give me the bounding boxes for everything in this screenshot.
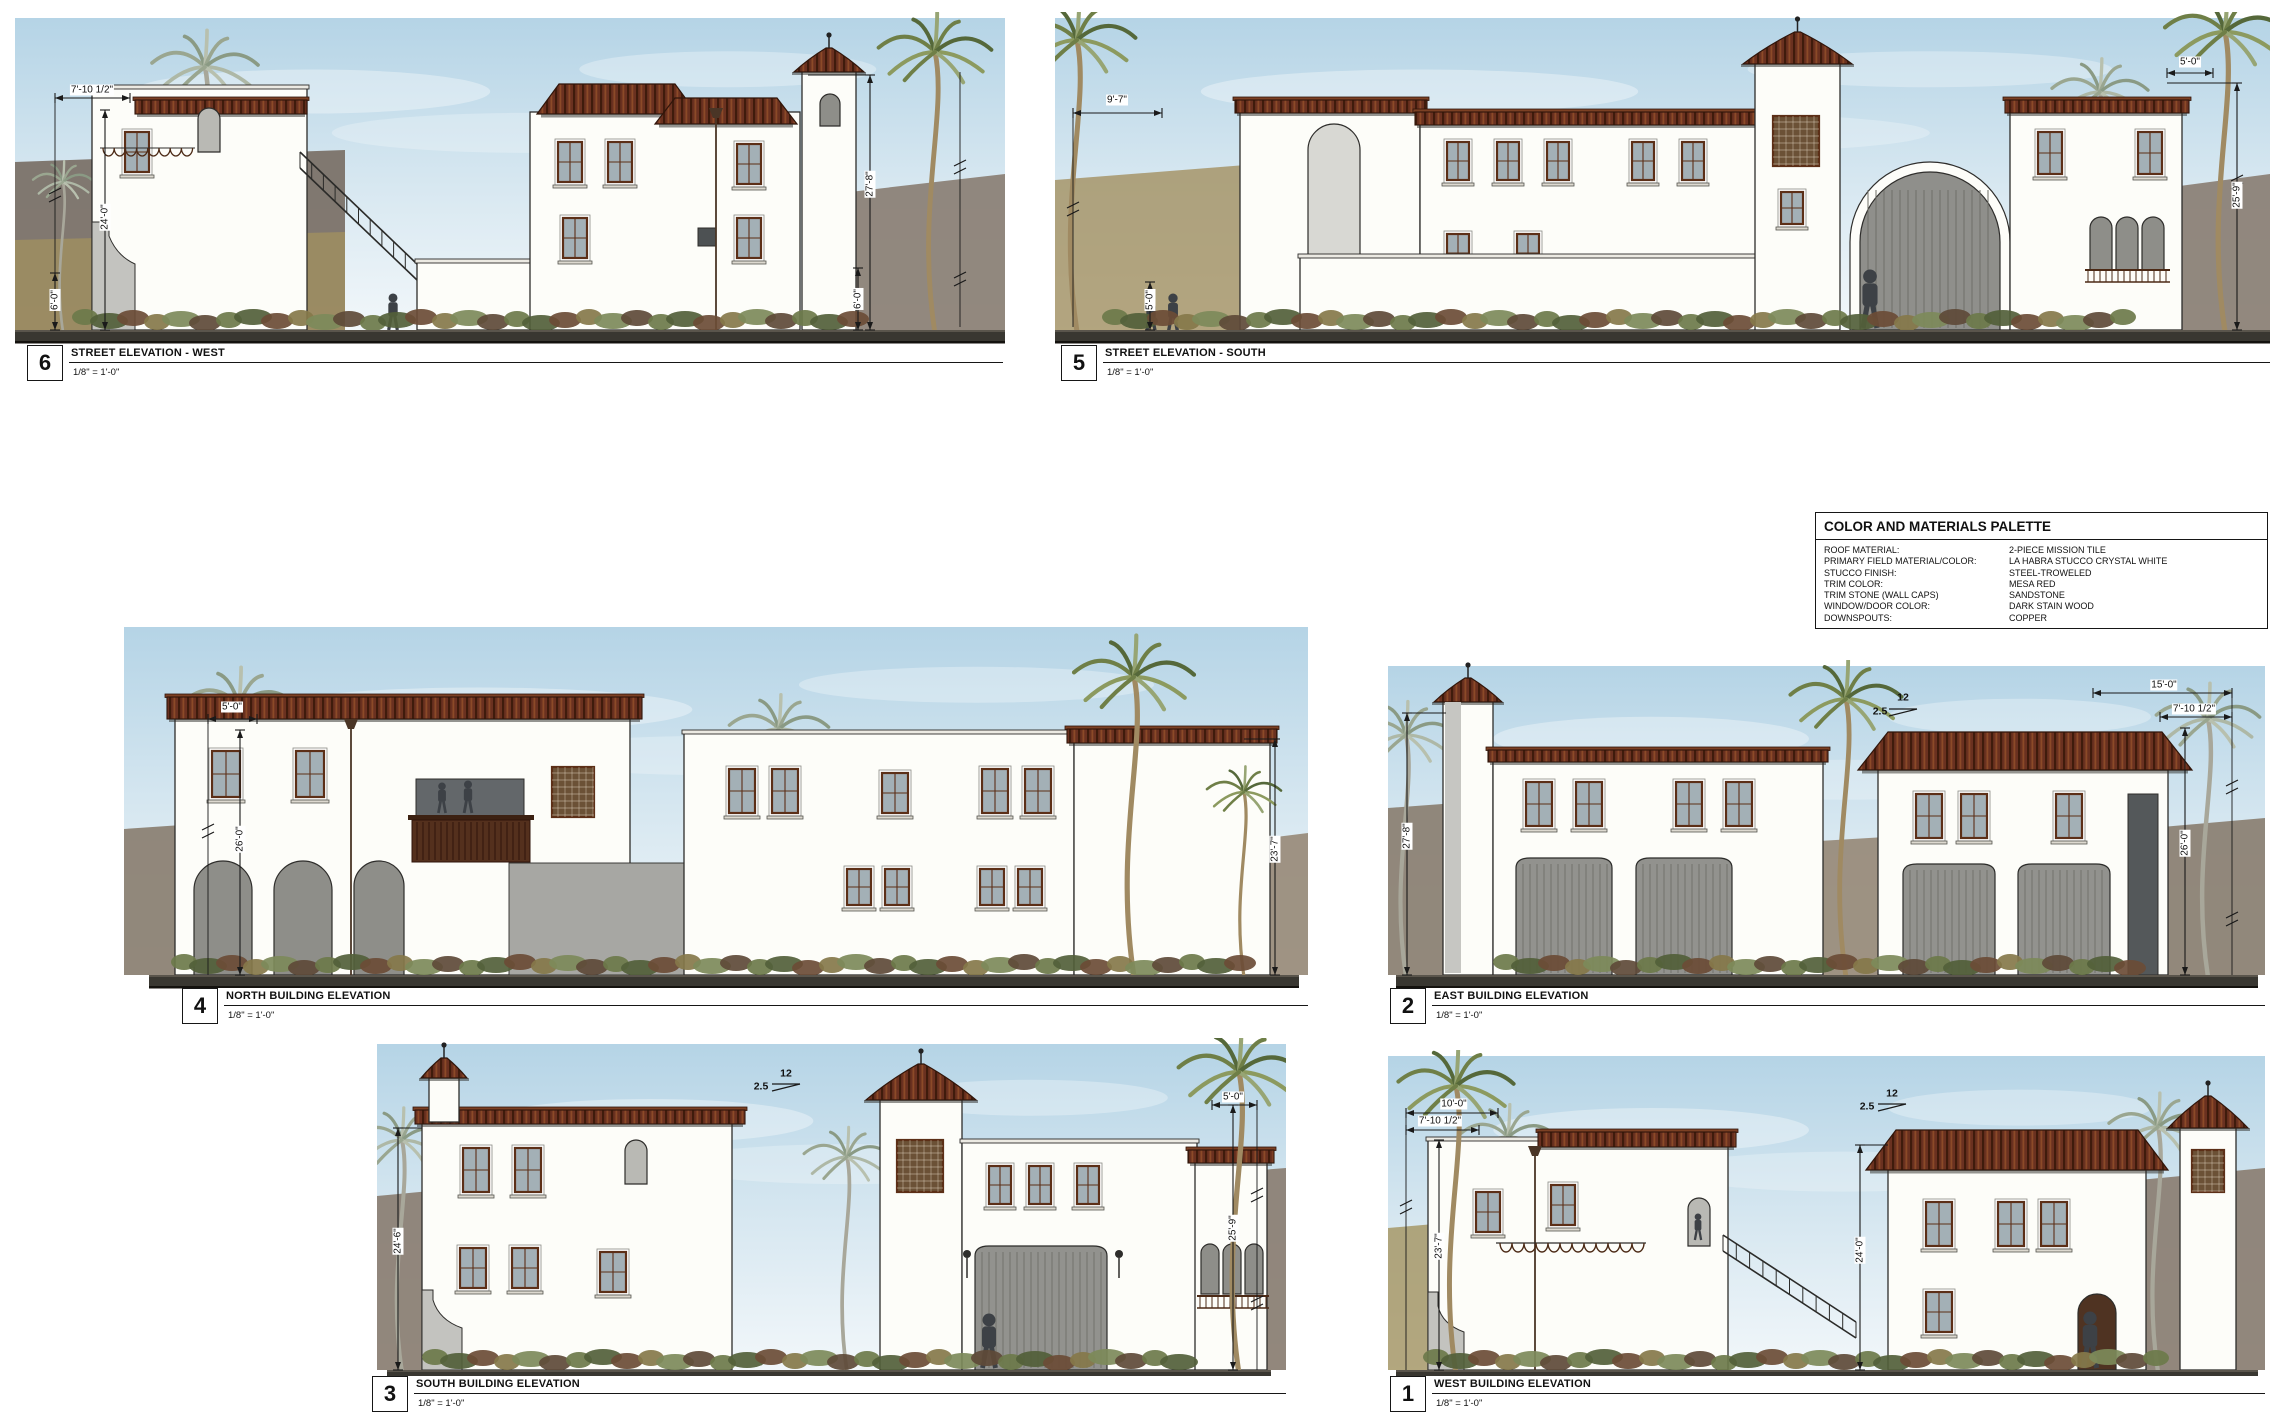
titleblock-6: 6 STREET ELEVATION - WEST 1/8" = 1'-0"	[27, 345, 1003, 381]
slope-label: 12	[779, 1069, 793, 1080]
titleblock-1: 1 WEST BUILDING ELEVATION 1/8" = 1'-0"	[1390, 1376, 2265, 1412]
elevation-drawing	[1388, 1050, 2265, 1395]
dimension-label: 23'-7"	[1270, 835, 1281, 862]
palette-row: TRIM STONE (WALL CAPS)SANDSTONE	[1824, 590, 2259, 601]
elevation-number: 1	[1390, 1376, 1426, 1412]
dimension-label: 5'-0"	[2179, 57, 2201, 68]
elevation-scale: 1/8" = 1'-0"	[224, 1006, 1308, 1021]
elevation-title: NORTH BUILDING ELEVATION	[224, 988, 1308, 1006]
elevation-drawing	[377, 1038, 1286, 1388]
ground-line	[1396, 975, 2258, 989]
elevation-number: 3	[372, 1376, 408, 1412]
dimension-label: 27'-8"	[865, 170, 876, 197]
dimension-label: 7'-10 1/2"	[1418, 1116, 1462, 1127]
elevation-number: 2	[1390, 988, 1426, 1024]
elevation-drawing	[1055, 12, 2270, 364]
slope-label: 2.5	[1872, 707, 1889, 718]
elevation-title: WEST BUILDING ELEVATION	[1432, 1376, 2265, 1394]
elevation-drawing	[15, 12, 1005, 364]
palette-rows: ROOF MATERIAL:2-PIECE MISSION TILE PRIMA…	[1816, 540, 2267, 628]
palette-title: COLOR AND MATERIALS PALETTE	[1816, 513, 2267, 540]
dimension-label: 5'-0"	[1145, 289, 1156, 311]
elevation-scale: 1/8" = 1'-0"	[414, 1394, 1286, 1409]
dimension-label: 10'-0"	[1440, 1099, 1467, 1110]
dimension-label: 5'-0"	[221, 702, 243, 713]
titleblock-5: 5 STREET ELEVATION - SOUTH 1/8" = 1'-0"	[1061, 345, 2270, 381]
elevation-drawing	[124, 621, 1308, 993]
slope-label: 2.5	[753, 1082, 770, 1093]
elevation-drawing	[1388, 660, 2265, 990]
dimension-label: 24'-0"	[100, 203, 111, 230]
dimension-label: 6'-0"	[853, 288, 864, 310]
elevation-scale: 1/8" = 1'-0"	[1432, 1006, 2265, 1021]
slope-label: 12	[1885, 1089, 1899, 1100]
palette-row: ROOF MATERIAL:2-PIECE MISSION TILE	[1824, 545, 2259, 556]
elevation-scale: 1/8" = 1'-0"	[1432, 1394, 2265, 1409]
elevation-scale: 1/8" = 1'-0"	[69, 363, 1003, 378]
palette-row: PRIMARY FIELD MATERIAL/COLOR:LA HABRA ST…	[1824, 556, 2259, 567]
elevation-panel-5: 9'-7"5'-0"5'-0"25'-9"	[1055, 12, 2270, 364]
elevation-panel-6: 7'-10 1/2"24'-0"6'-0"27'-8"6'-0"	[15, 12, 1005, 364]
elevation-scale: 1/8" = 1'-0"	[1103, 363, 2270, 378]
ground-line	[15, 330, 1005, 344]
dimension-label: 27'-8"	[1402, 822, 1413, 849]
palette-row: TRIM COLOR:MESA RED	[1824, 579, 2259, 590]
slope-label: 12	[1896, 693, 1910, 704]
dimension-label: 23'-7"	[1434, 1232, 1445, 1259]
dimension-label: 6'-0"	[50, 289, 61, 311]
elevation-sheet: 7'-10 1/2"24'-0"6'-0"27'-8"6'-0" 9'-7"5'…	[0, 0, 2274, 1412]
elevation-title: STREET ELEVATION - SOUTH	[1103, 345, 2270, 363]
elevation-number: 6	[27, 345, 63, 381]
elevation-panel-2: 27'-8"15'-0"7'-10 1/2"26'-0"122.5	[1388, 660, 2265, 990]
palette-row: STUCCO FINISH:STEEL-TROWELED	[1824, 568, 2259, 579]
elevation-panel-4: 5'-0"26'-0"23'-7"	[124, 621, 1308, 993]
dimension-label: 9'-7"	[1106, 95, 1128, 106]
dimension-label: 7'-10 1/2"	[2172, 704, 2216, 715]
palette-row: DOWNSPOUTS:COPPER	[1824, 613, 2259, 624]
elevation-title: SOUTH BUILDING ELEVATION	[414, 1376, 1286, 1394]
titleblock-2: 2 EAST BUILDING ELEVATION 1/8" = 1'-0"	[1390, 988, 2265, 1024]
titleblock-4: 4 NORTH BUILDING ELEVATION 1/8" = 1'-0"	[182, 988, 1308, 1024]
elevation-number: 5	[1061, 345, 1097, 381]
dimension-label: 24'-6"	[393, 1227, 404, 1254]
dimension-label: 24'-0"	[1855, 1236, 1866, 1263]
color-materials-palette: COLOR AND MATERIALS PALETTE ROOF MATERIA…	[1815, 512, 2268, 629]
elevation-panel-1: 10'-0"7'-10 1/2"23'-7"24'-0"122.5	[1388, 1050, 2265, 1395]
dimension-label: 26'-0"	[2180, 829, 2191, 856]
dimension-label: 25'-9"	[1228, 1214, 1239, 1241]
elevation-title: EAST BUILDING ELEVATION	[1432, 988, 2265, 1006]
ground-line	[149, 975, 1299, 989]
dimension-label: 26'-0"	[235, 825, 246, 852]
slope-label: 2.5	[1859, 1102, 1876, 1113]
elevation-number: 4	[182, 988, 218, 1024]
dimension-label: 5'-0"	[1222, 1092, 1244, 1103]
dimension-label: 15'-0"	[2150, 680, 2177, 691]
ground-line	[1055, 330, 2270, 344]
elevation-title: STREET ELEVATION - WEST	[69, 345, 1003, 363]
titleblock-3: 3 SOUTH BUILDING ELEVATION 1/8" = 1'-0"	[372, 1376, 1286, 1412]
dimension-label: 7'-10 1/2"	[70, 85, 114, 96]
elevation-panel-3: 24'-6"5'-0"25'-9"122.5	[377, 1038, 1286, 1388]
palette-row: WINDOW/DOOR COLOR:DARK STAIN WOOD	[1824, 601, 2259, 612]
dimension-label: 25'-9"	[2232, 181, 2243, 208]
